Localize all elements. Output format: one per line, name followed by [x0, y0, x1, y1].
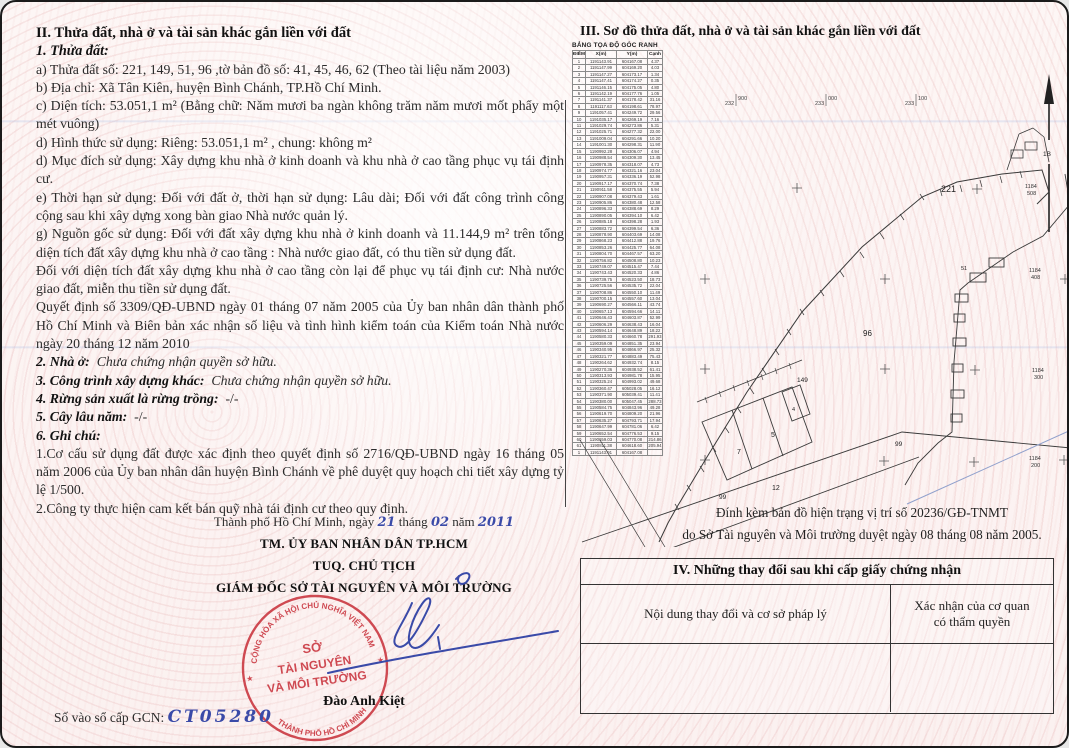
sheet-label-1: 1184 508: [1025, 184, 1037, 197]
clause-perennial: 5. Cây lâu năm: -/-: [36, 408, 564, 426]
north-arrow-icon: 1B: [1043, 74, 1054, 232]
address-line: b) Địa chỉ: Xã Tân Kiên, huyện Bình Chán…: [36, 79, 564, 97]
top-right-structures: [1007, 128, 1049, 170]
parcel-label-51: 51: [961, 266, 967, 272]
right-strip-parcels: [905, 174, 1067, 485]
svg-text:900: 900: [738, 96, 747, 102]
signature-scribble: [394, 598, 439, 648]
parcel-label-7: 7: [737, 449, 741, 456]
sheet-label-3: 1184 300: [1032, 368, 1044, 381]
signature-underline: [328, 631, 558, 673]
clause-notes: 6. Ghi chú:: [36, 427, 564, 445]
use-term-line: e) Thời hạn sử dụng: Đối với đất ở, thời…: [36, 189, 564, 226]
attachment-note: Đính kèm bản đồ hiện trạng vị trí số 202…: [662, 502, 1062, 546]
handwritten-year: 2011: [478, 515, 514, 530]
certificate-page: II. Thửa đất, nhà ở và tài sản khác gắn …: [0, 0, 1069, 748]
date-line: Thành phố Hồ Chí Minh, ngày 21 tháng 02 …: [184, 514, 544, 530]
attachment-note-line-2: do Sở Tài nguyên và Môi trường duyệt ngà…: [662, 524, 1062, 546]
blue-boundary-line: [907, 430, 1067, 504]
use-origin-line: g) Nguồn gốc sử dụng: Đối với đất xây dự…: [36, 225, 564, 262]
cadastral-map: 232 900 233 000 233 100 1B: [567, 42, 1067, 547]
section-4-col2-header: Xác nhận của cơ quan có thẩm quyền: [891, 585, 1053, 644]
svg-text:000: 000: [828, 96, 837, 102]
parcel-label-149: 149: [797, 377, 808, 384]
clause-forest: 4. Rừng sản xuất là rừng trồng: -/-: [36, 390, 564, 408]
sheet-label-4: 1184 200: [1029, 456, 1041, 469]
svg-text:1184: 1184: [1029, 268, 1041, 274]
gcn-handwritten-number: CT05280: [168, 707, 274, 727]
signature-flourish: [456, 573, 469, 584]
column-divider: [565, 100, 566, 507]
grid-cross-marks: [700, 183, 1067, 467]
handwritten-day: 21: [377, 515, 395, 530]
section-4-col-confirm: Xác nhận của cơ quan có thẩm quyền: [891, 585, 1053, 712]
parcel-number-labels: 221 96 149 51 7 5 4 12 99 99: [719, 184, 967, 501]
lower-left-parcels: [697, 360, 812, 480]
gcn-label: Số vào sổ cấp GCN:: [54, 710, 164, 725]
grid-label-1: 232 900: [725, 94, 747, 107]
svg-text:1184: 1184: [1029, 456, 1041, 462]
gcn-entry-line: Số vào sổ cấp GCN: CT05280: [54, 707, 274, 727]
stamp-star-left: ★: [246, 674, 254, 684]
parcel-label-5: 5: [771, 432, 775, 439]
svg-text:1184: 1184: [1025, 184, 1037, 190]
svg-text:200: 200: [1031, 463, 1040, 469]
svg-text:233: 233: [815, 101, 824, 107]
attachment-note-line-1: Đính kèm bản đồ hiện trạng vị trí số 202…: [662, 502, 1062, 524]
section-2: II. Thửa đất, nhà ở và tài sản khác gắn …: [36, 24, 564, 518]
parcel-label-99a: 99: [895, 441, 903, 448]
parcel-label-12: 12: [772, 485, 780, 492]
use-purpose-line: d) Mục đích sử dụng: Xây dựng khu nhà ở …: [36, 152, 564, 189]
parcel-label-4: 4: [792, 407, 795, 413]
authority-line-1: TM. ỦY BAN NHÂN DÂN TP.HCM: [184, 536, 544, 552]
note-1: 1.Cơ cấu sử dụng đất được xác định theo …: [36, 445, 564, 500]
decision-line: Quyết định số 3309/QĐ-UBND ngày 01 tháng…: [36, 298, 564, 353]
parcel-boundary: [659, 170, 1049, 542]
grid-coordinate-labels: 232 900 233 000 233 100: [725, 94, 927, 107]
area-line: c) Diện tích: 53.051,1 m² (Bằng chữ: Năm…: [36, 97, 564, 134]
clause-construction: 3. Công trình xây dựng khác: Chưa chứng …: [36, 372, 564, 390]
map-sheet-labels: 1184 508 1184 408 1184 300 1184 200: [1025, 184, 1044, 469]
use-origin-line-2: Đối với diện tích đất xây dựng khu nhà ở…: [36, 262, 564, 299]
handwritten-month: 02: [431, 515, 449, 530]
section-4-col1-header: Nội dung thay đổi và cơ sở pháp lý: [581, 585, 890, 644]
parcel-label-221: 221: [941, 184, 956, 194]
boundary-tick-marks: [675, 171, 1022, 510]
svg-text:300: 300: [1034, 375, 1043, 381]
parcel-label-99b: 99: [719, 494, 727, 501]
signature-tick: [438, 637, 440, 649]
svg-text:408: 408: [1031, 275, 1040, 281]
grid-label-3: 233 100: [905, 94, 927, 107]
grid-label-2: 233 000: [815, 94, 837, 107]
svg-text:232: 232: [725, 101, 734, 107]
parcel-label-96: 96: [863, 329, 872, 338]
clause-house: 2. Nhà ở: Chưa chứng nhận quyền sở hữu.: [36, 353, 564, 371]
section-4-col-content: Nội dung thay đổi và cơ sở pháp lý: [581, 585, 891, 712]
section-3-title: III. Sơ đồ thửa đất, nhà ở và tài sản kh…: [580, 24, 1060, 40]
parcel-number-line: a) Thửa đất số: 221, 149, 51, 96 ,tờ bản…: [36, 61, 564, 79]
section-4-title: IV. Những thay đổi sau khi cấp giấy chứn…: [581, 559, 1053, 585]
use-form-line: d) Hình thức sử dụng: Riêng: 53.051,1 m²…: [36, 134, 564, 152]
svg-text:100: 100: [918, 96, 927, 102]
sheet-label-2: 1184 408: [1029, 268, 1041, 281]
section-2-title: II. Thửa đất, nhà ở và tài sản khác gắn …: [36, 24, 564, 42]
section-4-table: IV. Những thay đổi sau khi cấp giấy chứn…: [580, 558, 1054, 714]
svg-text:1184: 1184: [1032, 368, 1044, 374]
svg-text:508: 508: [1027, 191, 1036, 197]
parcel-subtitle: 1. Thửa đất:: [36, 42, 564, 60]
svg-text:233: 233: [905, 101, 914, 107]
handwritten-signature: [320, 565, 582, 695]
signer-name: Đào Anh Kiệt: [264, 694, 464, 710]
